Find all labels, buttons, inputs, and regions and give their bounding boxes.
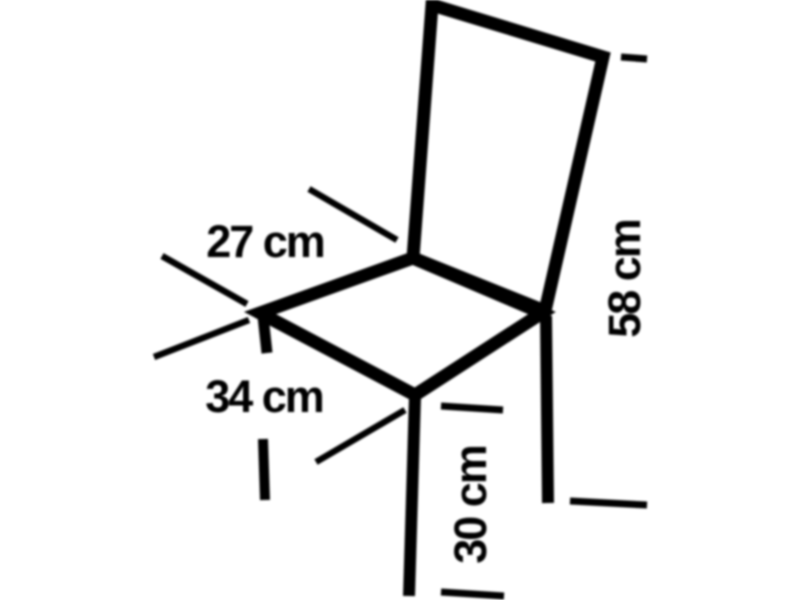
- svg-text:30 cm: 30 cm: [445, 446, 496, 564]
- svg-text:34 cm: 34 cm: [205, 371, 323, 422]
- svg-text:27 cm: 27 cm: [206, 216, 324, 267]
- svg-text:58 cm: 58 cm: [599, 220, 650, 338]
